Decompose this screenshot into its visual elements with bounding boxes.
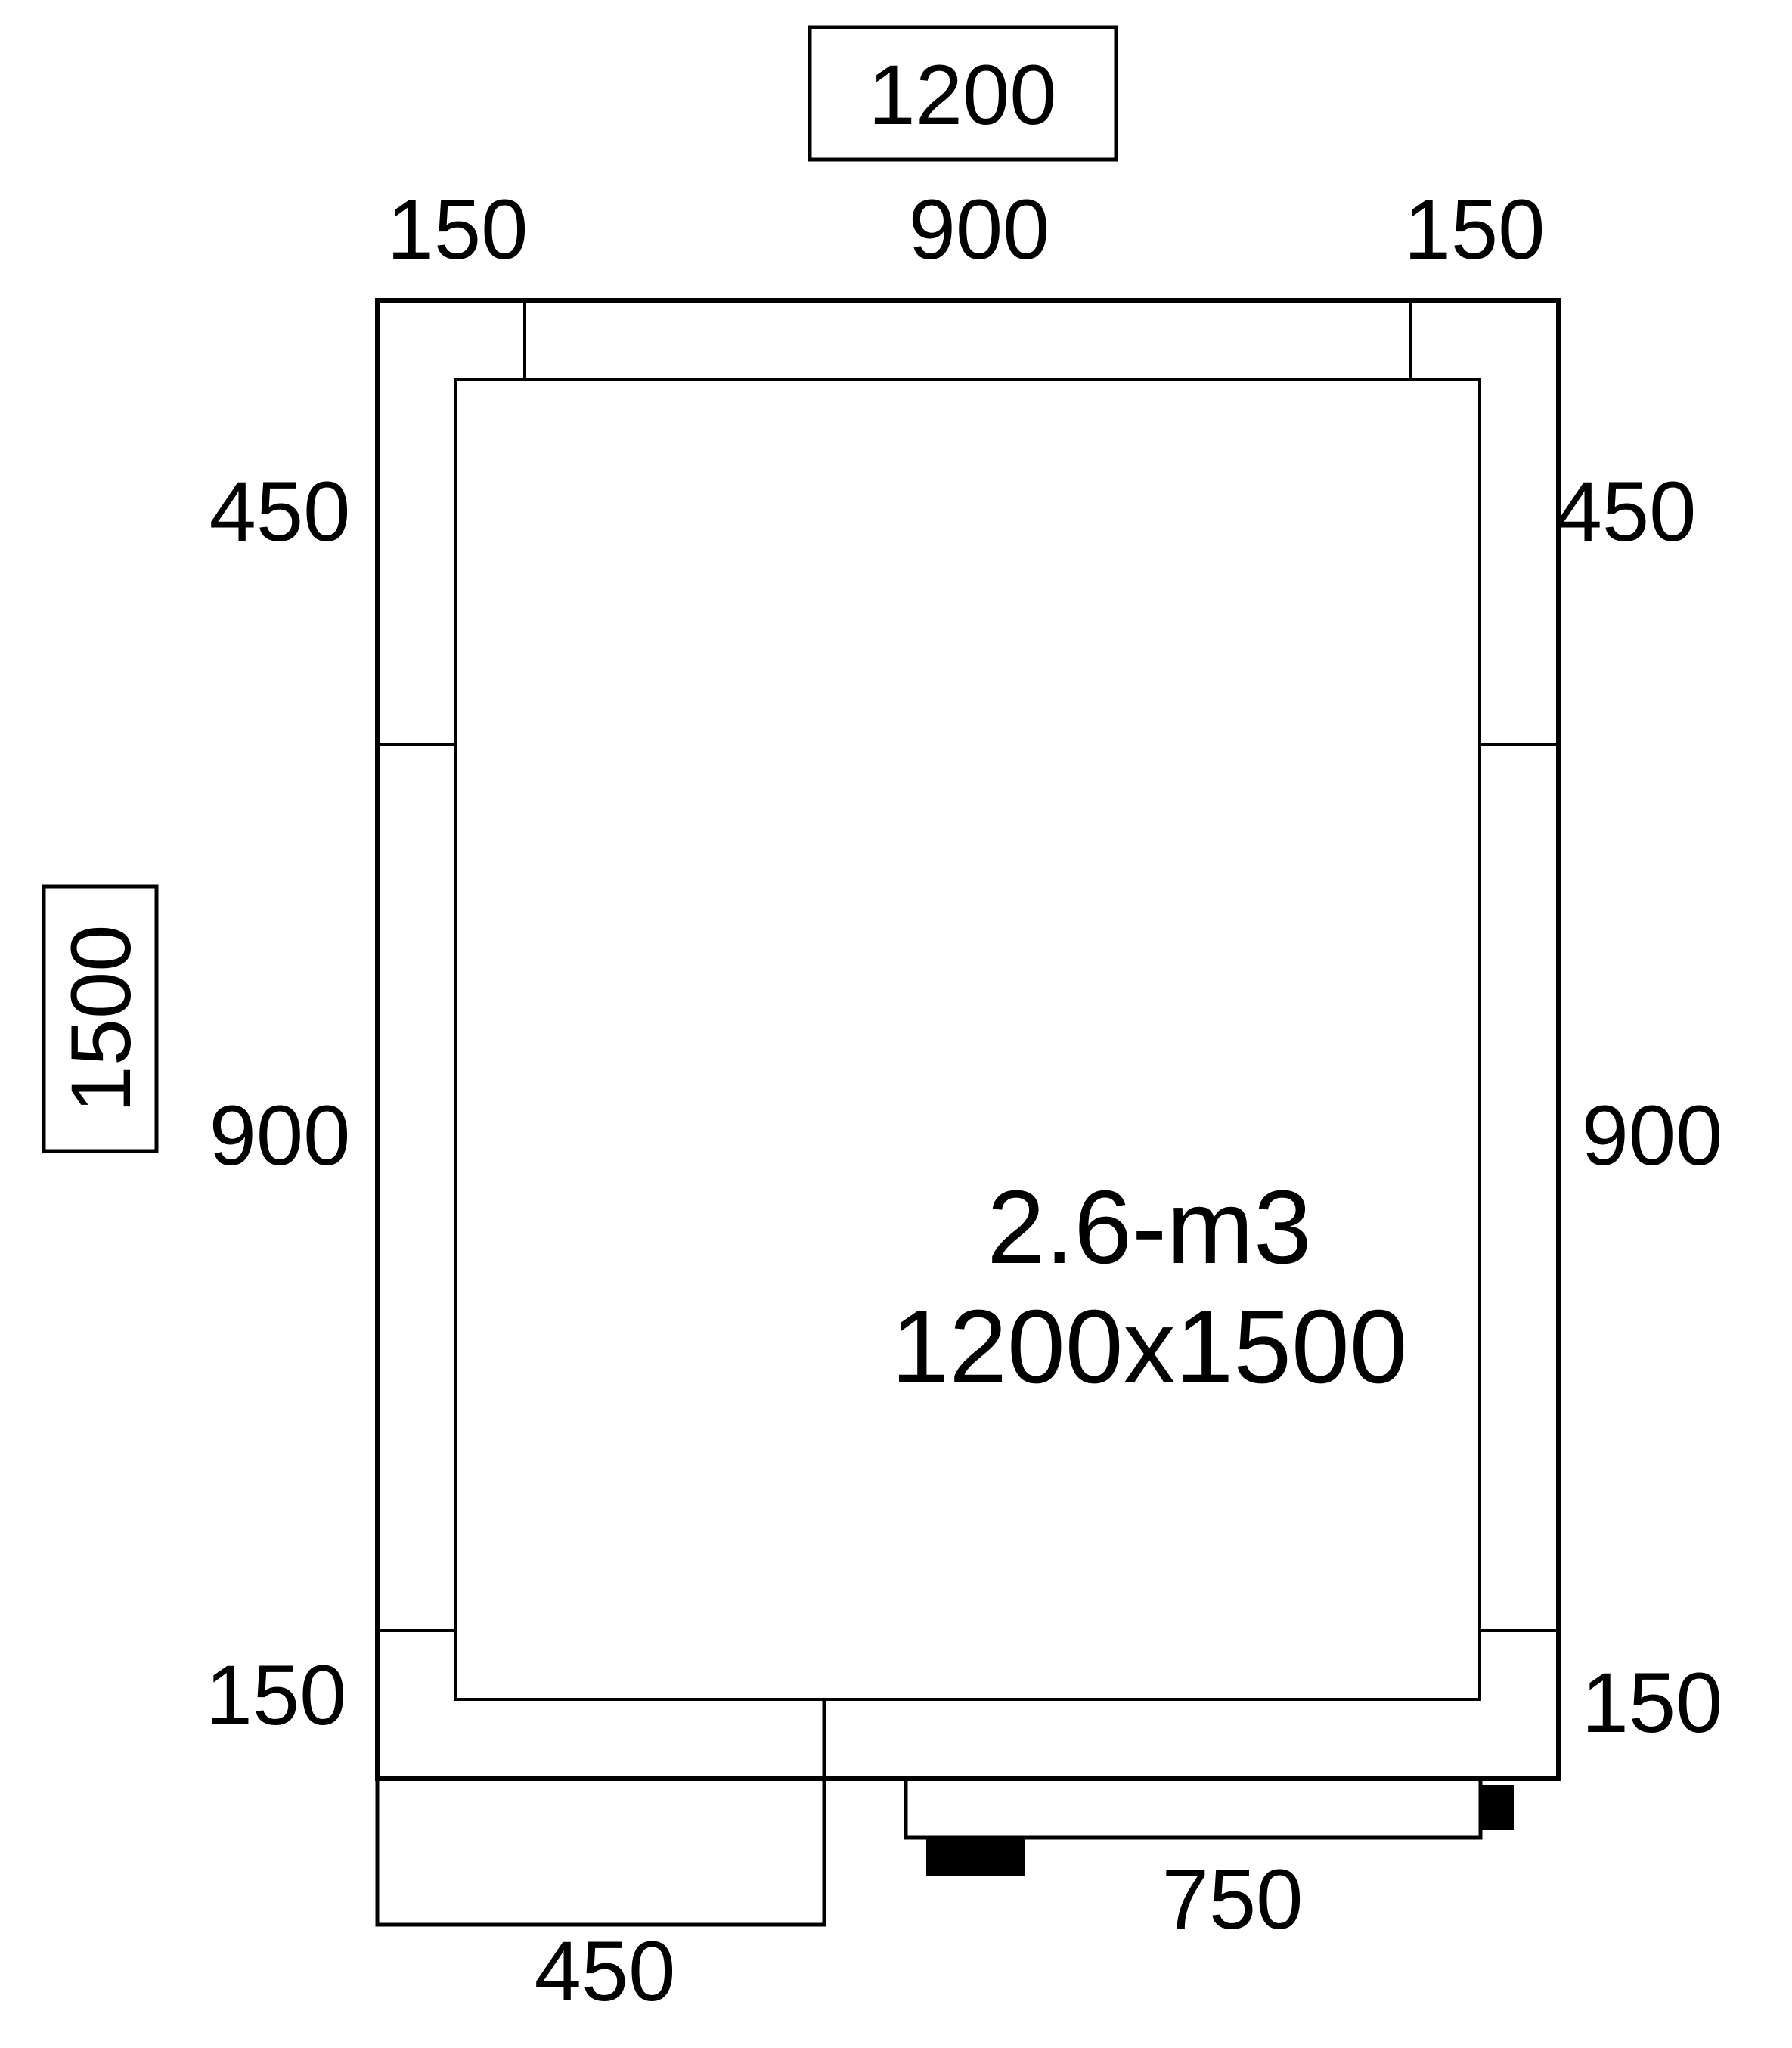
dim-right-bottom: 150 [1582,1655,1723,1750]
room-size-label: 1200x1500 [891,1289,1408,1405]
dim-bottom-panel: 450 [535,1924,676,2019]
floor-plan-canvas: 1200 1500 150 900 150 450 900 150 450 90… [0,0,1792,2044]
dim-left-top: 450 [209,464,351,559]
dim-top-center: 900 [909,182,1050,277]
dim-top-right: 150 [1404,182,1546,277]
door-handle-block [926,1838,1025,1876]
height-dimension-value: 1500 [54,924,148,1112]
width-dimension-value: 1200 [868,48,1056,142]
door-hinge-block [1480,1785,1514,1830]
outer-wall-outline [377,300,1558,1779]
dim-door-width: 750 [1162,1852,1304,1947]
dim-top-left: 150 [387,182,529,277]
dim-left-middle: 900 [209,1088,351,1183]
bottom-left-panel [377,1779,824,1925]
inner-wall-outline [456,380,1480,1699]
dim-right-middle: 900 [1582,1088,1723,1183]
floor-plan-drawing: 1200 1500 150 900 150 450 900 150 450 90… [0,0,1792,2044]
door-leaf [906,1779,1480,1838]
dim-left-bottom: 150 [206,1648,347,1742]
dim-right-top: 450 [1555,464,1697,559]
room-volume-label: 2.6-m3 [987,1169,1312,1286]
